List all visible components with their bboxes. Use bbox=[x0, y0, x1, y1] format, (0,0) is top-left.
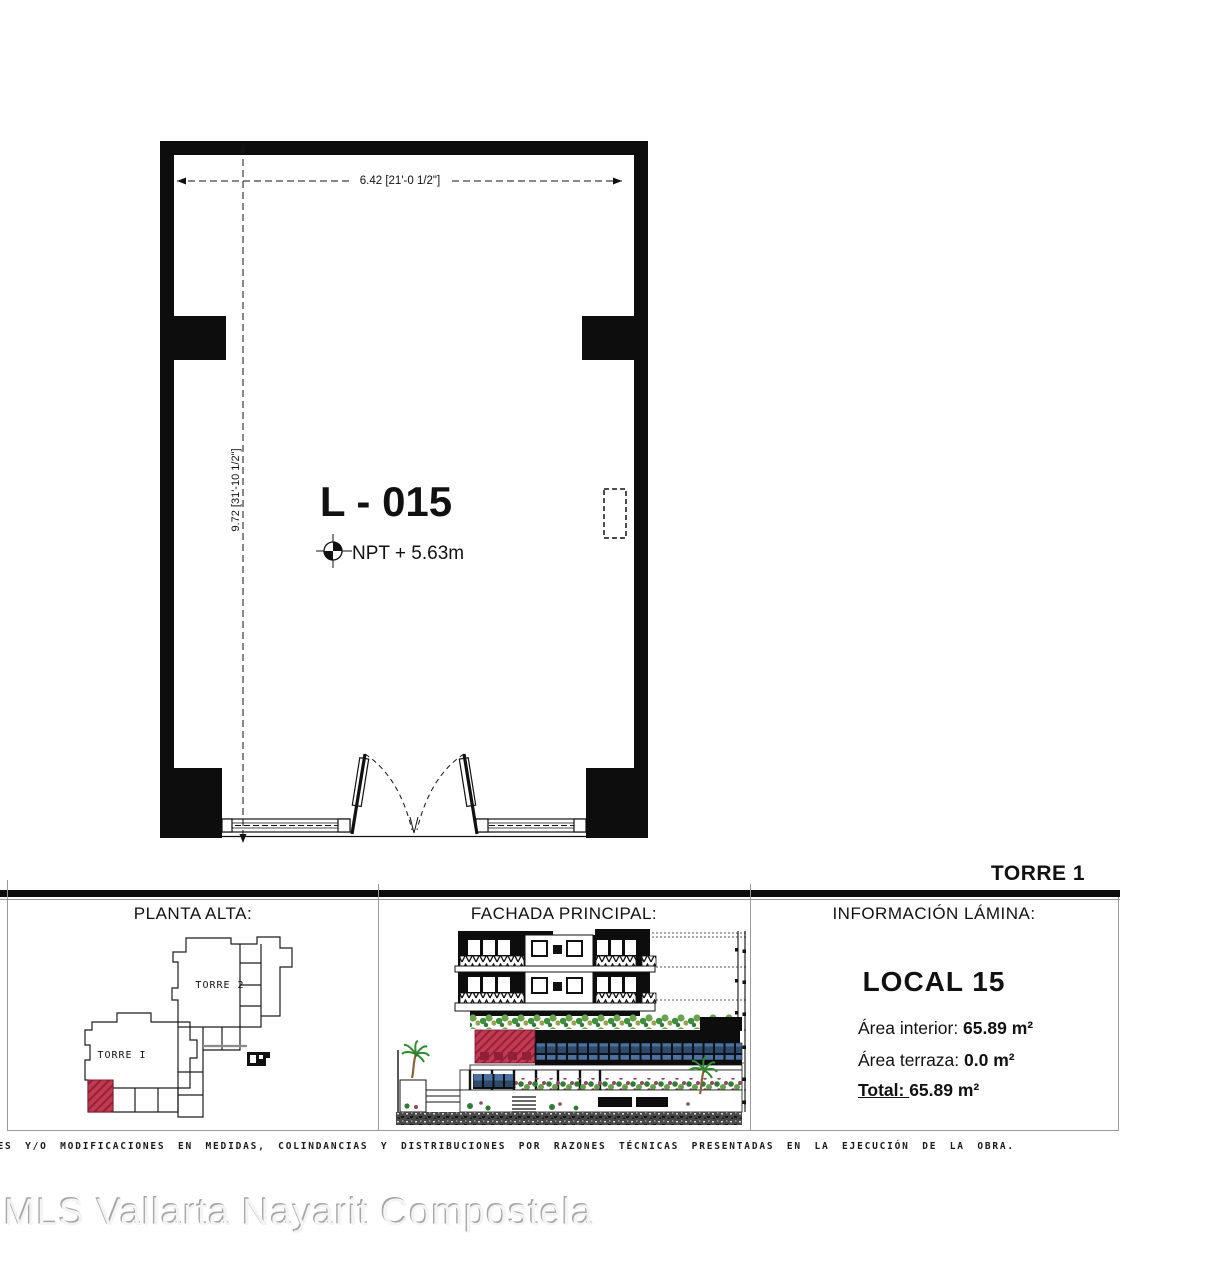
disclaimer-text: TES Y/O MODIFICACIONES EN MEDIDAS, COLIN… bbox=[0, 1141, 1015, 1152]
keyplan-drawing: TORRE 2 TORRE I bbox=[8, 903, 378, 1131]
panel-title-informacion: INFORMACIÓN LÁMINA: bbox=[750, 904, 1118, 924]
storefront-glazing bbox=[222, 819, 586, 832]
area-total-row: Total: 65.89 m² bbox=[858, 1080, 979, 1101]
frame-line bbox=[1118, 897, 1119, 1131]
title-bar-rule bbox=[0, 890, 1120, 897]
dimension-height: 9.72 [31'-10 1/2"] bbox=[227, 143, 247, 843]
floorplan-drawing: 6.42 [21'-0 1/2"] 9.72 [31'-10 1/2"] L -… bbox=[150, 135, 670, 850]
wall-niche bbox=[604, 489, 626, 538]
npt-benchmark-icon bbox=[316, 534, 352, 568]
tower-header: TORRE 1 bbox=[953, 862, 1123, 886]
double-door bbox=[352, 754, 477, 834]
elevator-core-icon bbox=[247, 1052, 270, 1066]
unit-label: L - 015 bbox=[320, 478, 452, 525]
dimension-width: 6.42 [21'-0 1/2"] bbox=[177, 173, 622, 187]
area-terraza-row: Área terraza: 0.0 m² bbox=[858, 1050, 1015, 1071]
dimension-height-label: 9.72 [31'-10 1/2"] bbox=[230, 448, 242, 531]
upper-floors bbox=[455, 929, 656, 1011]
local-title: LOCAL 15 bbox=[750, 966, 1118, 998]
plan-sheet: 6.42 [21'-0 1/2"] 9.72 [31'-10 1/2"] L -… bbox=[0, 0, 1221, 1272]
area-total-value: 65.89 m² bbox=[909, 1080, 979, 1100]
highlighted-unit bbox=[88, 1080, 113, 1112]
elevation-drawing bbox=[388, 903, 750, 1131]
ground-hatch bbox=[396, 1112, 742, 1125]
area-interior-label: Área interior: bbox=[858, 1018, 963, 1038]
npt-label: NPT + 5.63m bbox=[352, 543, 464, 564]
area-interior-value: 65.89 m² bbox=[963, 1018, 1033, 1038]
torre1-label: TORRE I bbox=[97, 1050, 146, 1061]
panel-title-planta-alta: PLANTA ALTA: bbox=[8, 904, 378, 924]
commercial-levels bbox=[460, 1011, 742, 1112]
frame-line bbox=[0, 899, 1120, 900]
palm-tree-icon bbox=[402, 1041, 429, 1078]
area-terraza-label: Área terraza: bbox=[858, 1050, 964, 1070]
area-interior-row: Área interior: 65.89 m² bbox=[858, 1018, 1033, 1039]
area-total-label: Total: bbox=[858, 1080, 909, 1100]
dimension-width-label: 6.42 [21'-0 1/2"] bbox=[360, 175, 440, 187]
panel-title-fachada: FACHADA PRINCIPAL: bbox=[378, 904, 750, 924]
area-terraza-value: 0.0 m² bbox=[964, 1050, 1015, 1070]
watermark-text: MLS Vallarta Nayarit Compostela bbox=[4, 1192, 594, 1235]
site-left bbox=[398, 1050, 460, 1112]
torre2-label: TORRE 2 bbox=[195, 980, 244, 991]
